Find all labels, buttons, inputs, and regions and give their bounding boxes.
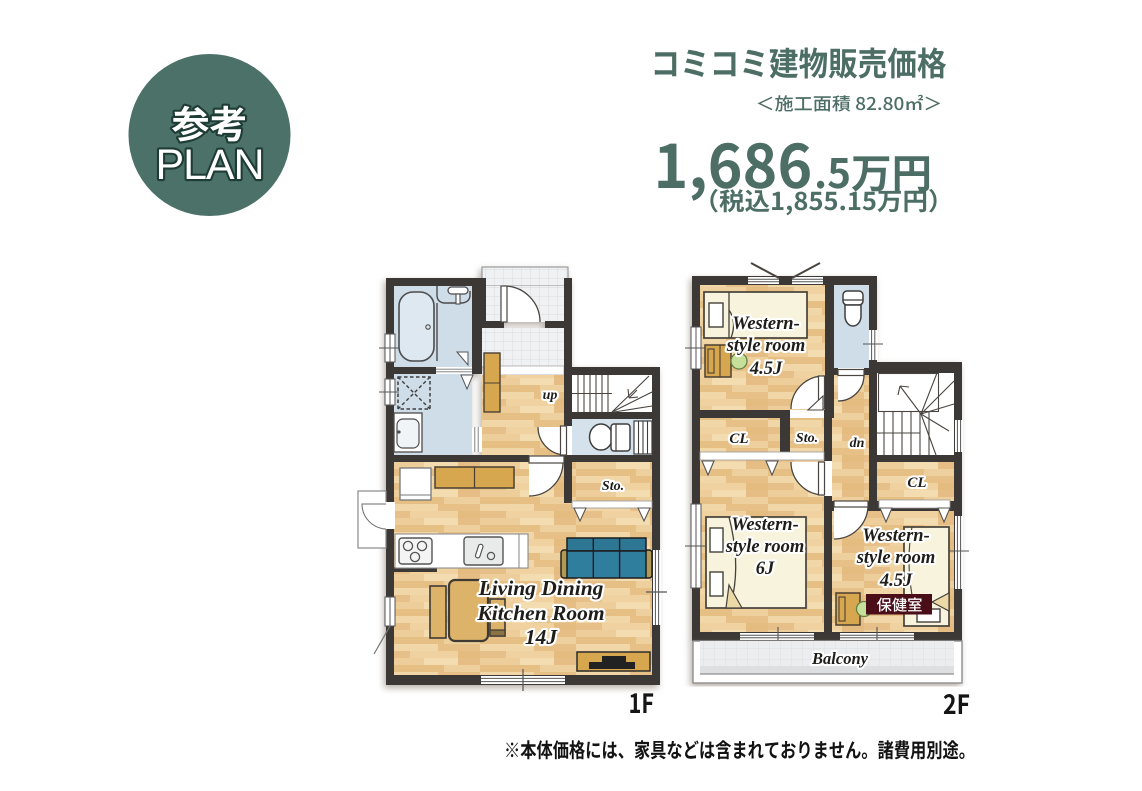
svg-text:style room: style room (725, 537, 805, 557)
svg-text:Kitchen Room: Kitchen Room (476, 601, 604, 625)
svg-text:CL: CL (729, 431, 748, 447)
svg-text:Western-: Western- (731, 515, 799, 535)
svg-text:Sto.: Sto. (602, 479, 624, 494)
svg-text:Sto.: Sto. (796, 431, 818, 446)
svg-text:4.5J: 4.5J (879, 571, 913, 591)
svg-text:Western-: Western- (862, 526, 930, 546)
svg-text:style room: style room (856, 548, 936, 568)
svg-text:Western-: Western- (732, 314, 800, 334)
svg-text:6J: 6J (756, 559, 775, 579)
svg-text:dn: dn (850, 436, 865, 451)
svg-text:4.5J: 4.5J (749, 359, 783, 379)
svg-text:style room: style room (726, 336, 806, 356)
svg-text:up: up (543, 388, 558, 403)
svg-text:14J: 14J (525, 625, 559, 649)
svg-text:CL: CL (907, 475, 926, 491)
svg-text:PLAN: PLAN (156, 141, 264, 189)
svg-text:Balcony: Balcony (811, 649, 869, 668)
svg-text:Living Dining: Living Dining (478, 576, 604, 600)
